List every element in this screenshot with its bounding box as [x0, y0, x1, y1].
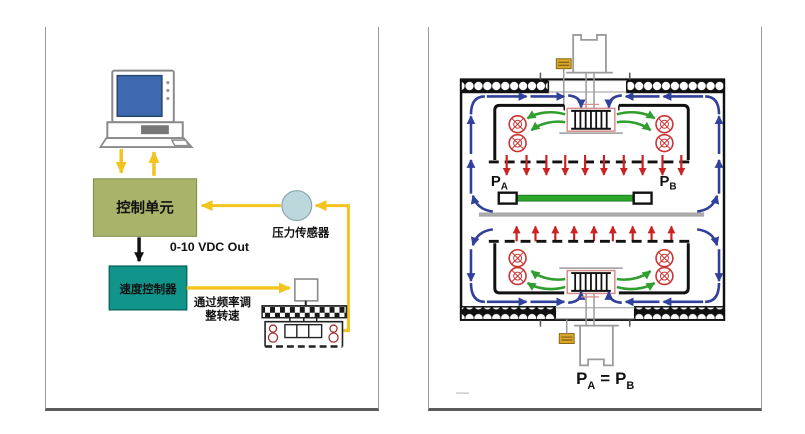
glass-substrate — [515, 195, 636, 201]
vdc-out-label: 0-10 VDC Out — [170, 240, 249, 254]
frequency-note-line1: 通过频率调 — [194, 295, 251, 309]
substrate-carrier-left — [499, 193, 517, 204]
fan-lower — [567, 271, 615, 294]
monitor-screen — [117, 76, 162, 117]
frequency-note-line2: 整转速 — [204, 309, 240, 323]
blower-grille — [262, 306, 346, 318]
computer-icon — [100, 71, 191, 147]
mouse-pad — [172, 140, 189, 145]
insulation-bottom-left — [461, 307, 555, 320]
pressure-sensor-label: 压力传感器 — [272, 225, 330, 239]
substrate-carrier-right — [634, 193, 652, 204]
blower-coil-right — [329, 325, 338, 342]
control-unit-box: 控制单元 — [93, 179, 196, 237]
capacitor-top — [556, 59, 571, 69]
computer-control-arrows — [121, 149, 154, 176]
oven-airflow-diagram: PA PB — [429, 27, 761, 408]
capacitor-bottom — [559, 334, 574, 344]
fan-upper — [567, 108, 615, 131]
insulation-bottom-right — [635, 307, 724, 320]
control-system-diagram-panel: 控制单元 压力传感器 0-10 VDC Out 速度控制器 通过频率调 整转速 — [45, 27, 379, 411]
pressure-equation: PA=PB — [576, 369, 634, 392]
speed-controller-box: 速度控制器 — [109, 266, 186, 310]
drive-slot — [141, 125, 169, 134]
speed-controller-label: 速度控制器 — [119, 282, 177, 296]
insulation-top-left — [461, 80, 548, 93]
blower-coil-left — [268, 325, 277, 342]
control-system-diagram: 控制单元 压力传感器 0-10 VDC Out 速度控制器 通过频率调 整转速 — [46, 27, 378, 408]
oven-airflow-diagram-panel: PA PB — [428, 27, 762, 411]
control-unit-label: 控制单元 — [116, 199, 174, 217]
frequency-note: 通过频率调 整转速 — [194, 295, 251, 323]
blower-controller-display — [295, 279, 318, 301]
pressure-sensor: 压力传感器 — [272, 191, 330, 240]
insulation-top-right — [627, 80, 724, 93]
